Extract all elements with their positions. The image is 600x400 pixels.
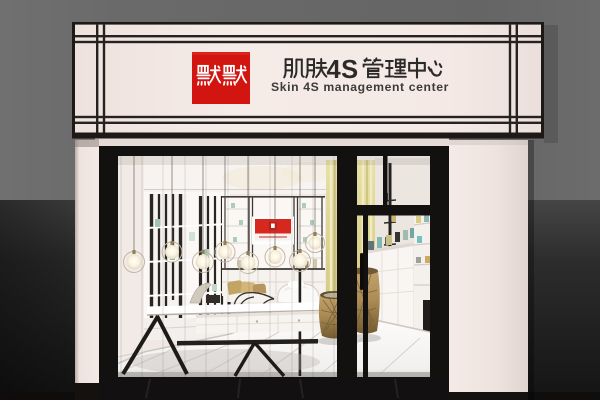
svg-text:Skin 4S management center: Skin 4S management center xyxy=(271,80,449,94)
